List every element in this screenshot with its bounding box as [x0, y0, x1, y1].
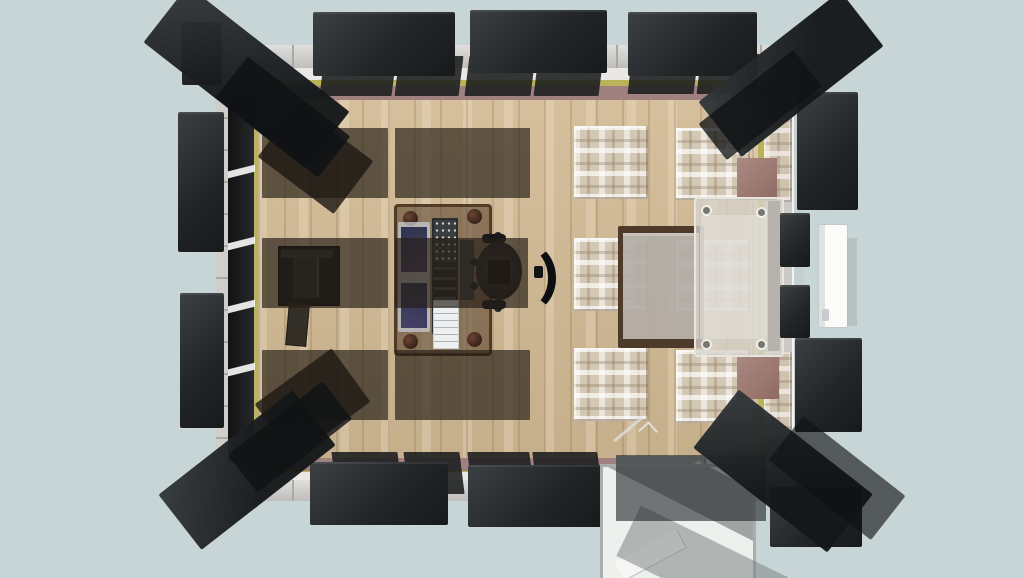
sofa-corner-screw [703, 207, 710, 214]
wall-absorber-box[interactable] [628, 12, 757, 76]
sofa-corner-screw [758, 341, 765, 348]
desk-isolation-cylinder [403, 334, 418, 349]
wall-absorber-box[interactable] [468, 465, 604, 527]
wall-absorber-left-band[interactable] [228, 96, 254, 462]
wall-absorber-box[interactable] [310, 462, 448, 525]
wall-absorber-box[interactable] [313, 12, 455, 76]
sofa-corner-screw [703, 341, 710, 348]
piano-bench[interactable] [285, 303, 310, 347]
chair-back-knob [534, 266, 543, 278]
sofa-seat-cushion [700, 214, 768, 340]
mauve-block-top[interactable] [737, 158, 777, 200]
wall-absorber-box-small[interactable] [780, 285, 810, 338]
wall-absorber-box[interactable] [180, 293, 224, 428]
wall-absorber-box-small[interactable] [780, 213, 810, 267]
skyline-diffuser[interactable] [574, 126, 648, 199]
wall-absorber-box[interactable] [797, 92, 858, 210]
wall-absorber-box[interactable] [178, 112, 224, 252]
radiator-shadow [847, 238, 857, 326]
ceiling-panel[interactable] [395, 350, 530, 420]
coffee-table[interactable] [618, 226, 704, 348]
ceiling-panel[interactable] [395, 238, 528, 308]
sofa-back [768, 201, 780, 351]
skyline-diffuser[interactable] [574, 348, 648, 421]
sofa[interactable] [694, 197, 784, 357]
sofa-corner-screw [758, 209, 765, 216]
radiator-valve [822, 309, 829, 321]
desk-isolation-cylinder [467, 332, 482, 347]
radiator[interactable] [818, 224, 848, 328]
viewport-3d-room-top-view [0, 0, 1024, 578]
ceiling-panel[interactable] [262, 238, 388, 308]
desk-isolation-cylinder [467, 209, 482, 224]
ceiling-panel[interactable] [395, 128, 530, 198]
wall-absorber-box[interactable] [470, 10, 607, 73]
